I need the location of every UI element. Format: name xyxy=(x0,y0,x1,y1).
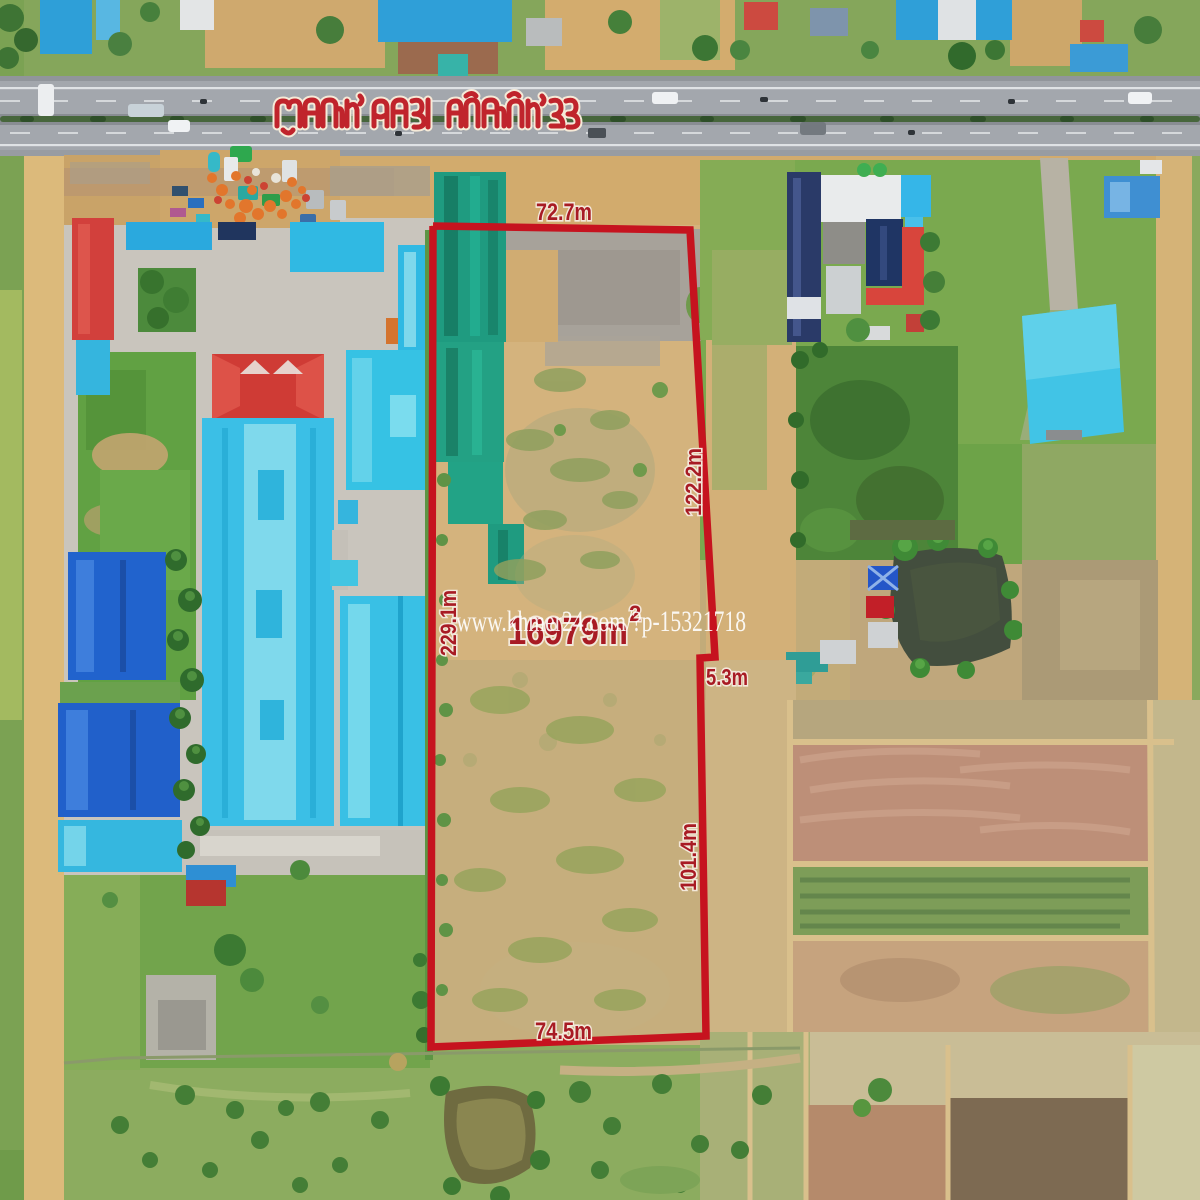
svg-text:5.3m: 5.3m xyxy=(706,664,748,690)
svg-text:www.khmer24.com/?p-15321718: www.khmer24.com/?p-15321718 xyxy=(456,605,746,638)
svg-text:72.7m: 72.7m xyxy=(536,199,592,226)
svg-text:74.5m: 74.5m xyxy=(535,1018,592,1045)
svg-text:122.2m: 122.2m xyxy=(681,448,706,516)
svg-text:101.4m: 101.4m xyxy=(676,823,701,891)
